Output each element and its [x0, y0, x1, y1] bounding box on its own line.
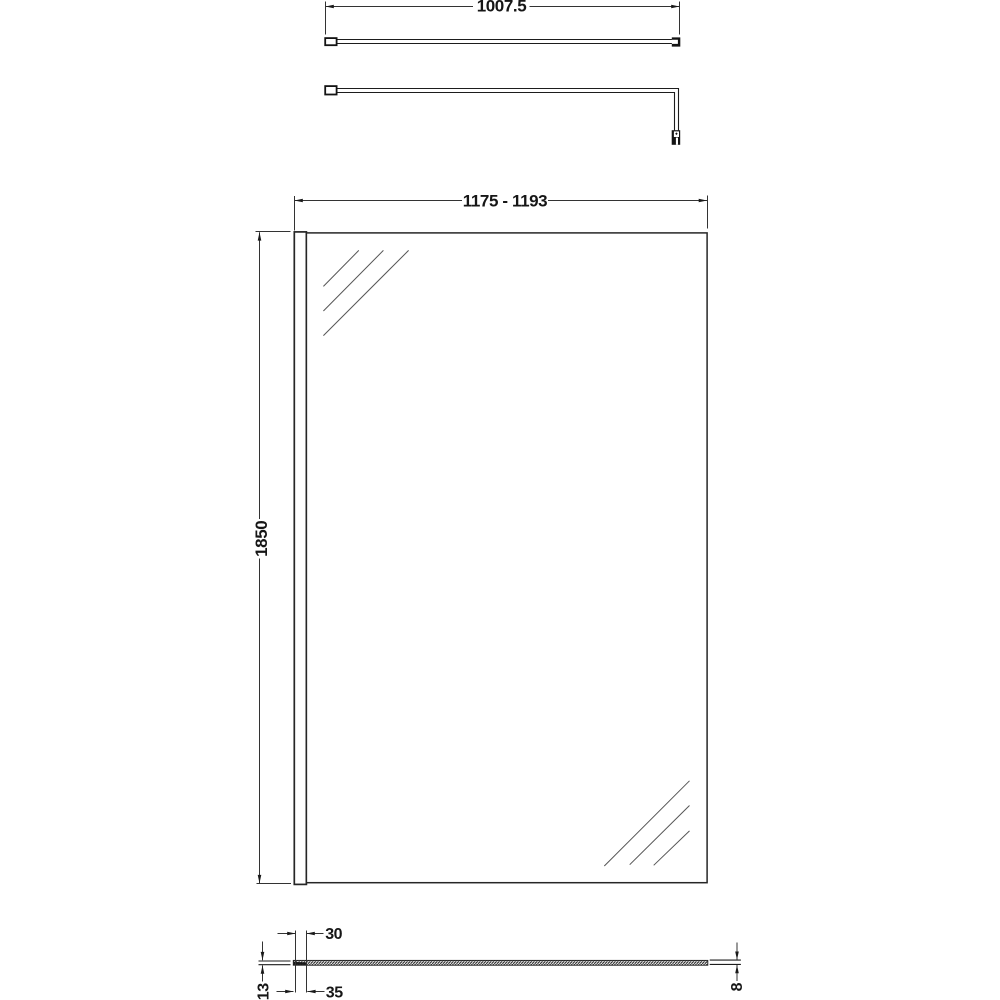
svg-text:8: 8	[729, 982, 746, 991]
svg-text:30: 30	[325, 926, 342, 943]
svg-text:13: 13	[255, 983, 272, 1000]
svg-text:1007.5: 1007.5	[477, 0, 527, 15]
svg-text:1850: 1850	[252, 521, 271, 557]
svg-text:35: 35	[326, 984, 343, 1000]
svg-text:1175 - 1193: 1175 - 1193	[463, 192, 547, 211]
